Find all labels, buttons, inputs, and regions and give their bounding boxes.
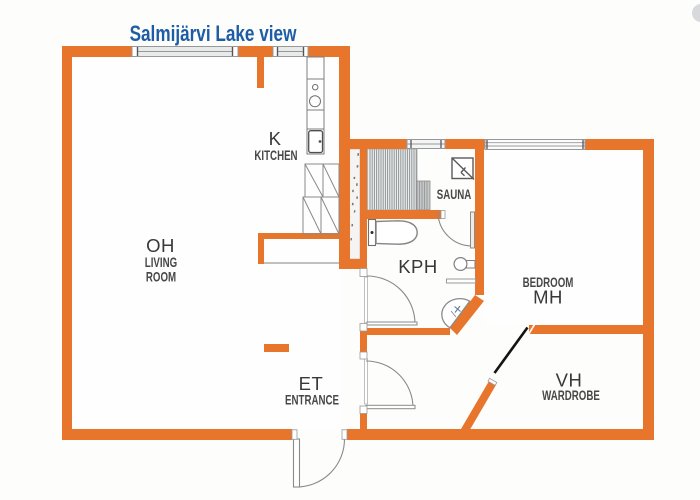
svg-text:MH: MH: [533, 287, 563, 308]
svg-text:WARDROBE: WARDROBE: [542, 389, 600, 404]
svg-text:VH: VH: [556, 370, 583, 391]
svg-text:ET: ET: [299, 373, 324, 394]
svg-text:OH: OH: [146, 235, 175, 256]
svg-text:SAUNA: SAUNA: [437, 188, 472, 203]
svg-text:LIVING: LIVING: [145, 256, 177, 271]
svg-text:ROOM: ROOM: [146, 270, 176, 285]
svg-text:ENTRANCE: ENTRANCE: [285, 393, 339, 408]
svg-text:KPH: KPH: [398, 256, 438, 277]
svg-text:Salmijärvi Lake view: Salmijärvi Lake view: [130, 22, 297, 47]
svg-text:KITCHEN: KITCHEN: [254, 149, 297, 164]
svg-text:K: K: [269, 128, 282, 149]
